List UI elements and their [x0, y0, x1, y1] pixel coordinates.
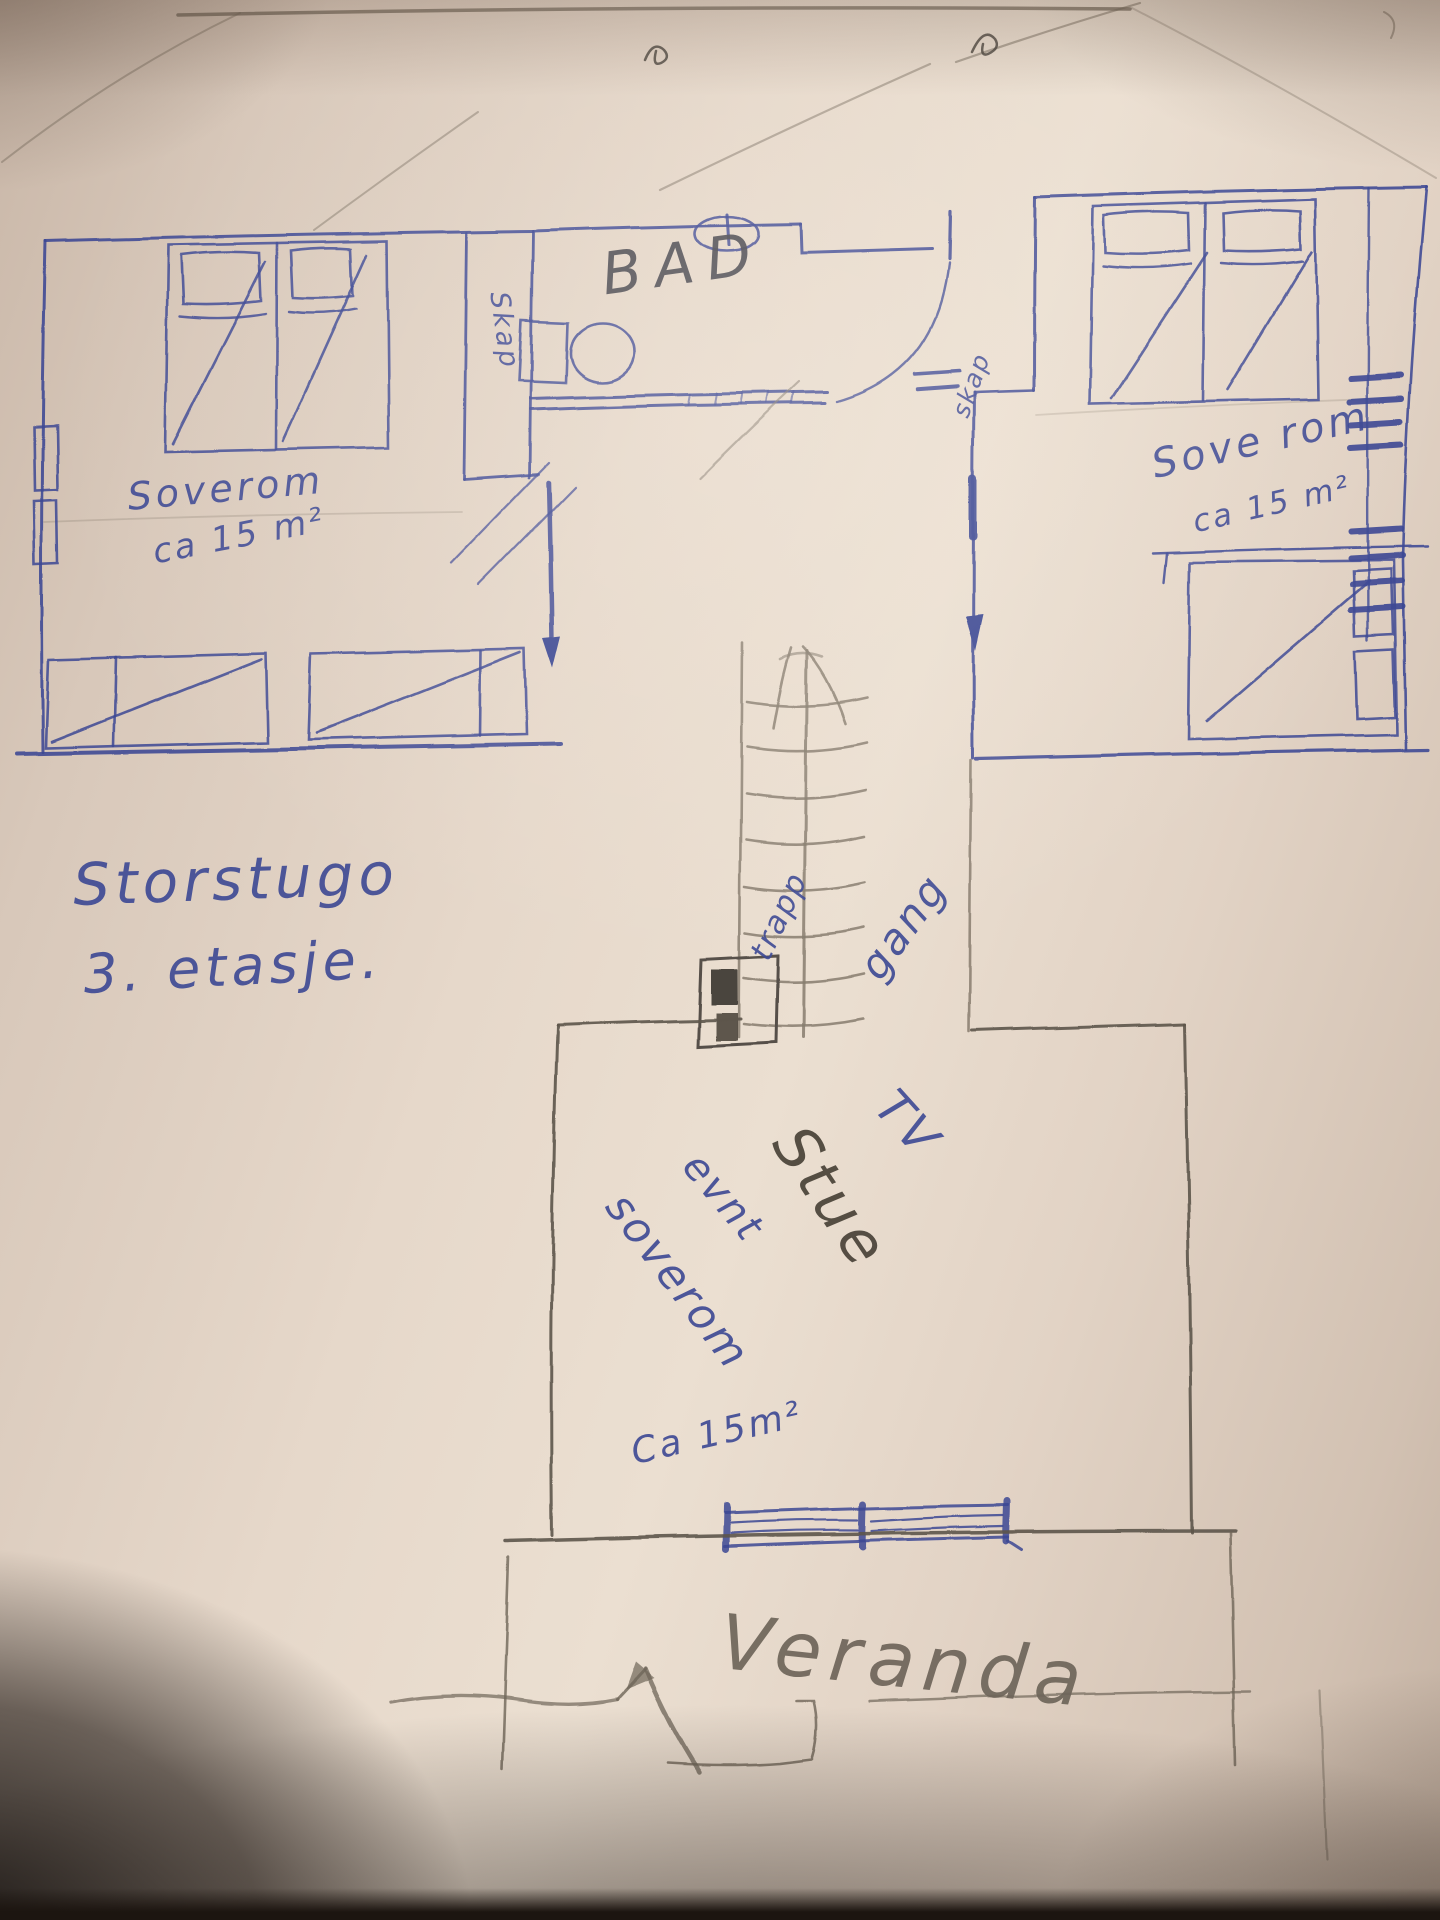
bed-right-lower — [1188, 560, 1397, 739]
floor-title: Storstugo — [72, 845, 400, 914]
floor-plan-photo: BAD Skap skap Soverom ca 15 m² Sove rom … — [0, 0, 1440, 1920]
windows-bottom-left — [46, 648, 527, 748]
door-swing-lines — [452, 463, 575, 585]
floor-subtitle: 3. etasje. — [82, 932, 384, 1002]
window-symbol-left-wall — [34, 425, 58, 564]
wall-end-arrow — [965, 614, 983, 650]
toilet — [519, 321, 634, 383]
bathroom-door-arc — [838, 263, 949, 401]
double-bed-left — [165, 241, 389, 452]
chimney — [698, 955, 778, 1047]
wall-end-arrow — [543, 636, 561, 668]
twin-beds-right — [1090, 199, 1318, 404]
living-room-walls — [506, 1019, 1235, 1541]
veranda-door-window — [725, 1501, 1022, 1550]
bathroom-door-leaf — [949, 212, 950, 259]
stairs — [700, 382, 971, 1038]
